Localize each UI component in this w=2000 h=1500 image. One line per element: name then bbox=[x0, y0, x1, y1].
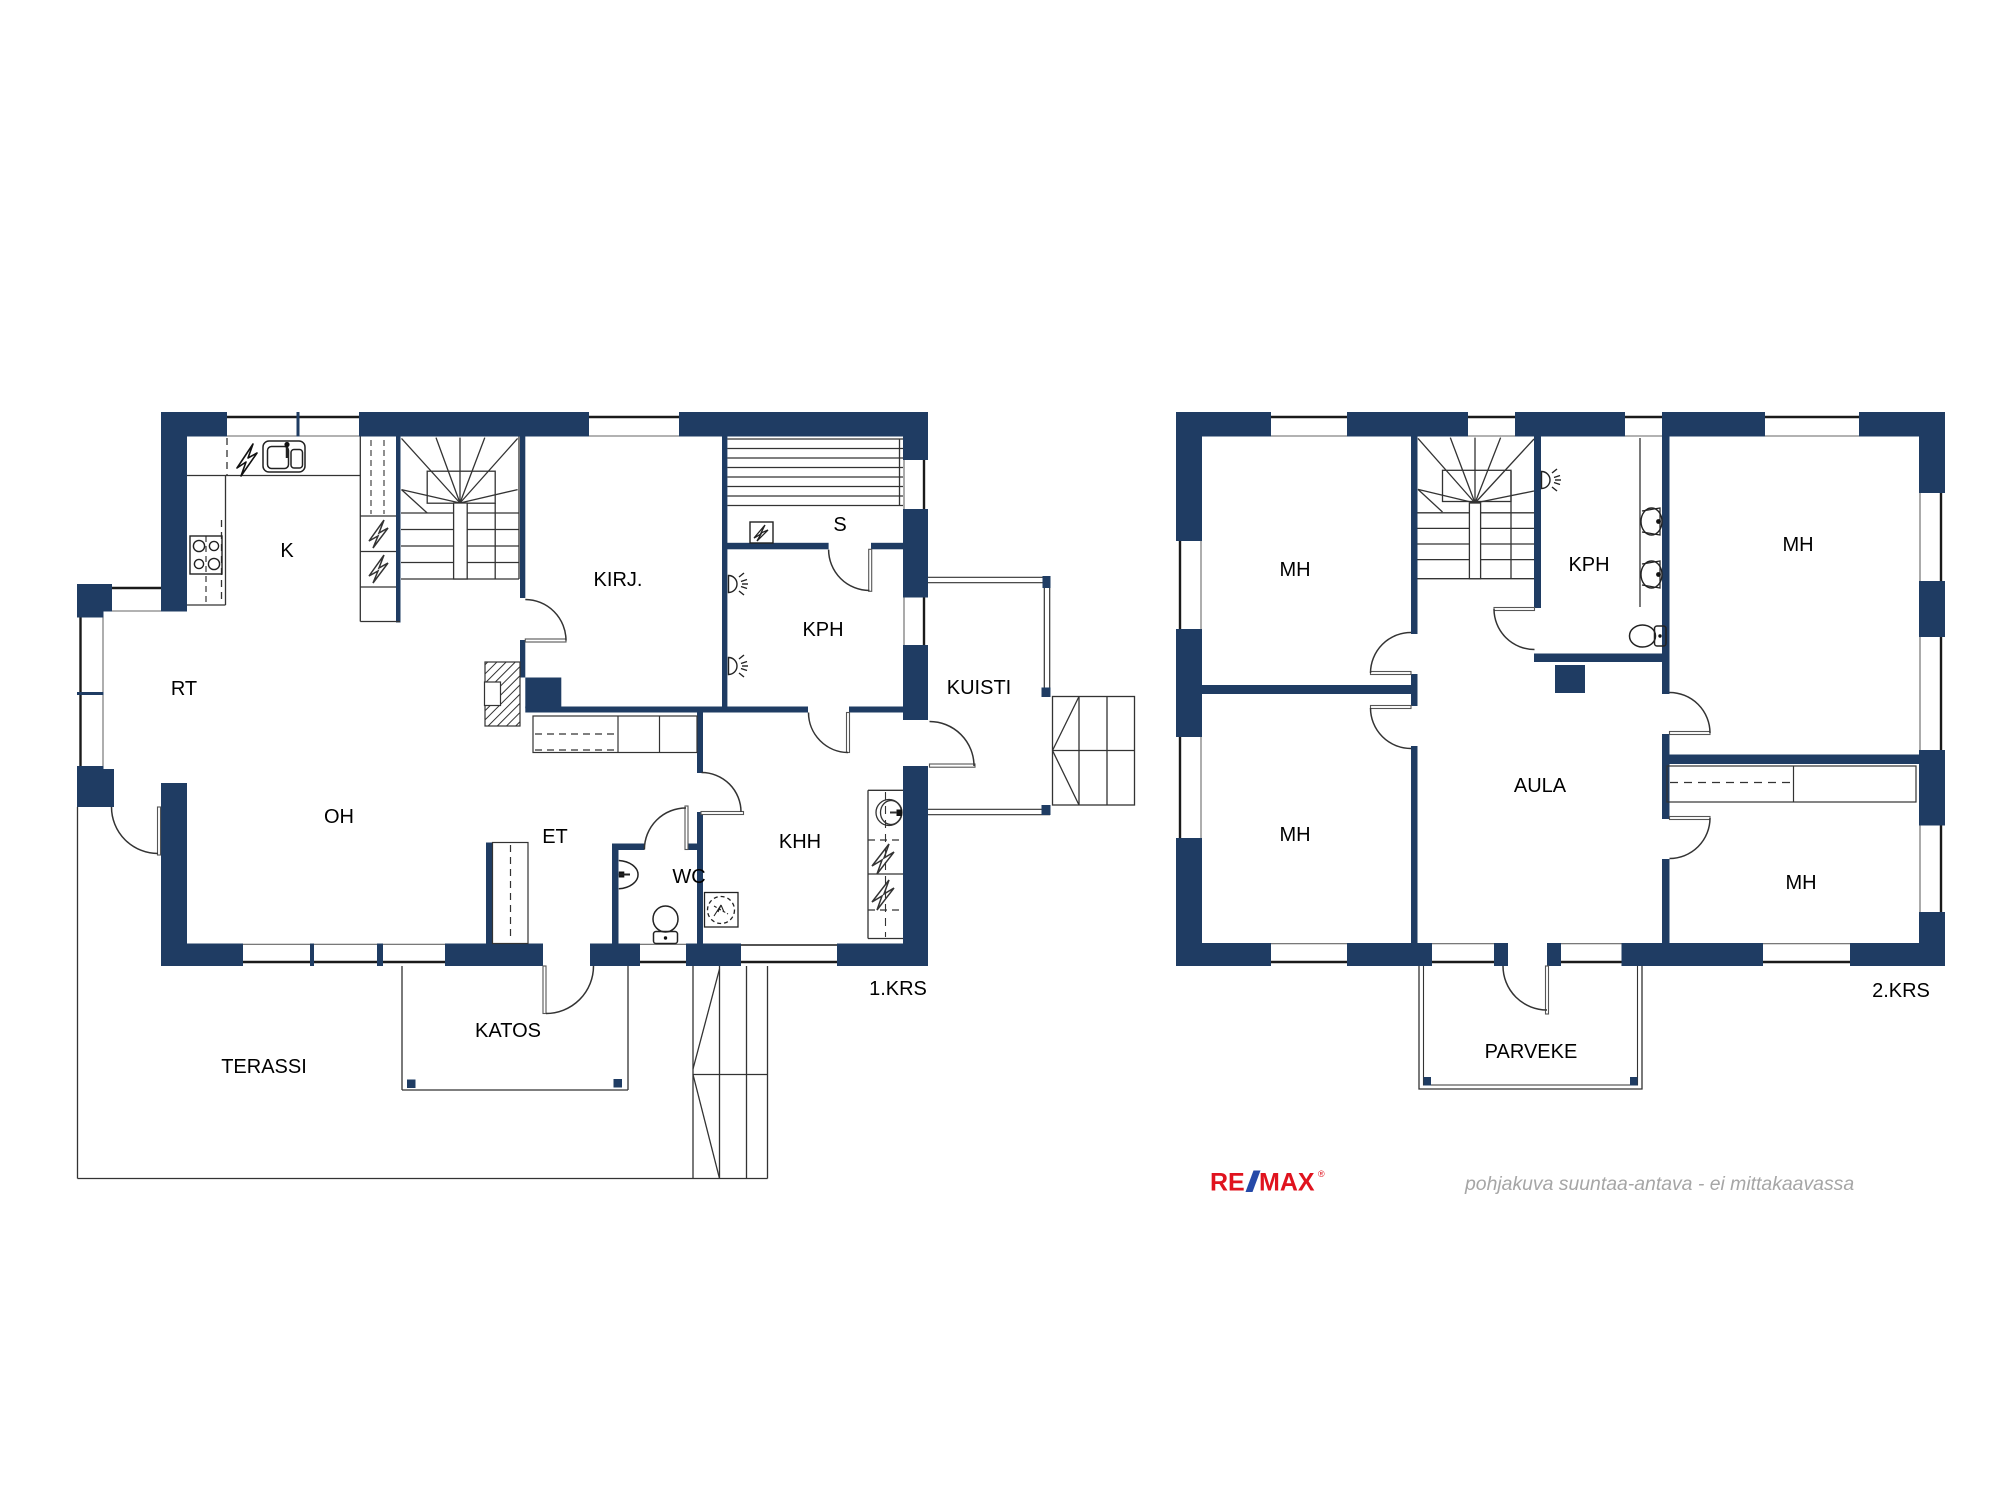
svg-text:OH: OH bbox=[324, 806, 354, 828]
svg-text:PARVEKE: PARVEKE bbox=[1485, 1041, 1578, 1063]
svg-text:RT: RT bbox=[171, 678, 197, 700]
svg-text:AULA: AULA bbox=[1514, 775, 1567, 797]
svg-text:WC: WC bbox=[672, 866, 705, 888]
svg-text:TERASSI: TERASSI bbox=[221, 1056, 307, 1078]
svg-text:MAX: MAX bbox=[1259, 1169, 1315, 1197]
svg-text:®: ® bbox=[1318, 1169, 1325, 1179]
svg-text:ET: ET bbox=[542, 826, 568, 848]
svg-text:KPH: KPH bbox=[1568, 554, 1609, 576]
svg-text:1.KRS: 1.KRS bbox=[869, 978, 927, 1000]
svg-text:2.KRS: 2.KRS bbox=[1872, 980, 1930, 1002]
svg-text:MH: MH bbox=[1279, 824, 1310, 846]
svg-text:S: S bbox=[833, 514, 846, 536]
svg-text:MH: MH bbox=[1279, 559, 1310, 581]
svg-text:KATOS: KATOS bbox=[475, 1020, 541, 1042]
svg-text:MH: MH bbox=[1785, 872, 1816, 894]
svg-text:KPH: KPH bbox=[802, 619, 843, 641]
svg-text:RE: RE bbox=[1210, 1169, 1245, 1197]
svg-text:KUISTI: KUISTI bbox=[947, 677, 1011, 699]
svg-text:KHH: KHH bbox=[779, 831, 821, 853]
svg-text:MH: MH bbox=[1782, 534, 1813, 556]
svg-text:K: K bbox=[280, 540, 294, 562]
svg-text:pohjakuva suuntaa-antava - ei: pohjakuva suuntaa-antava - ei mittakaava… bbox=[1464, 1173, 1854, 1195]
svg-text:KIRJ.: KIRJ. bbox=[594, 569, 643, 591]
